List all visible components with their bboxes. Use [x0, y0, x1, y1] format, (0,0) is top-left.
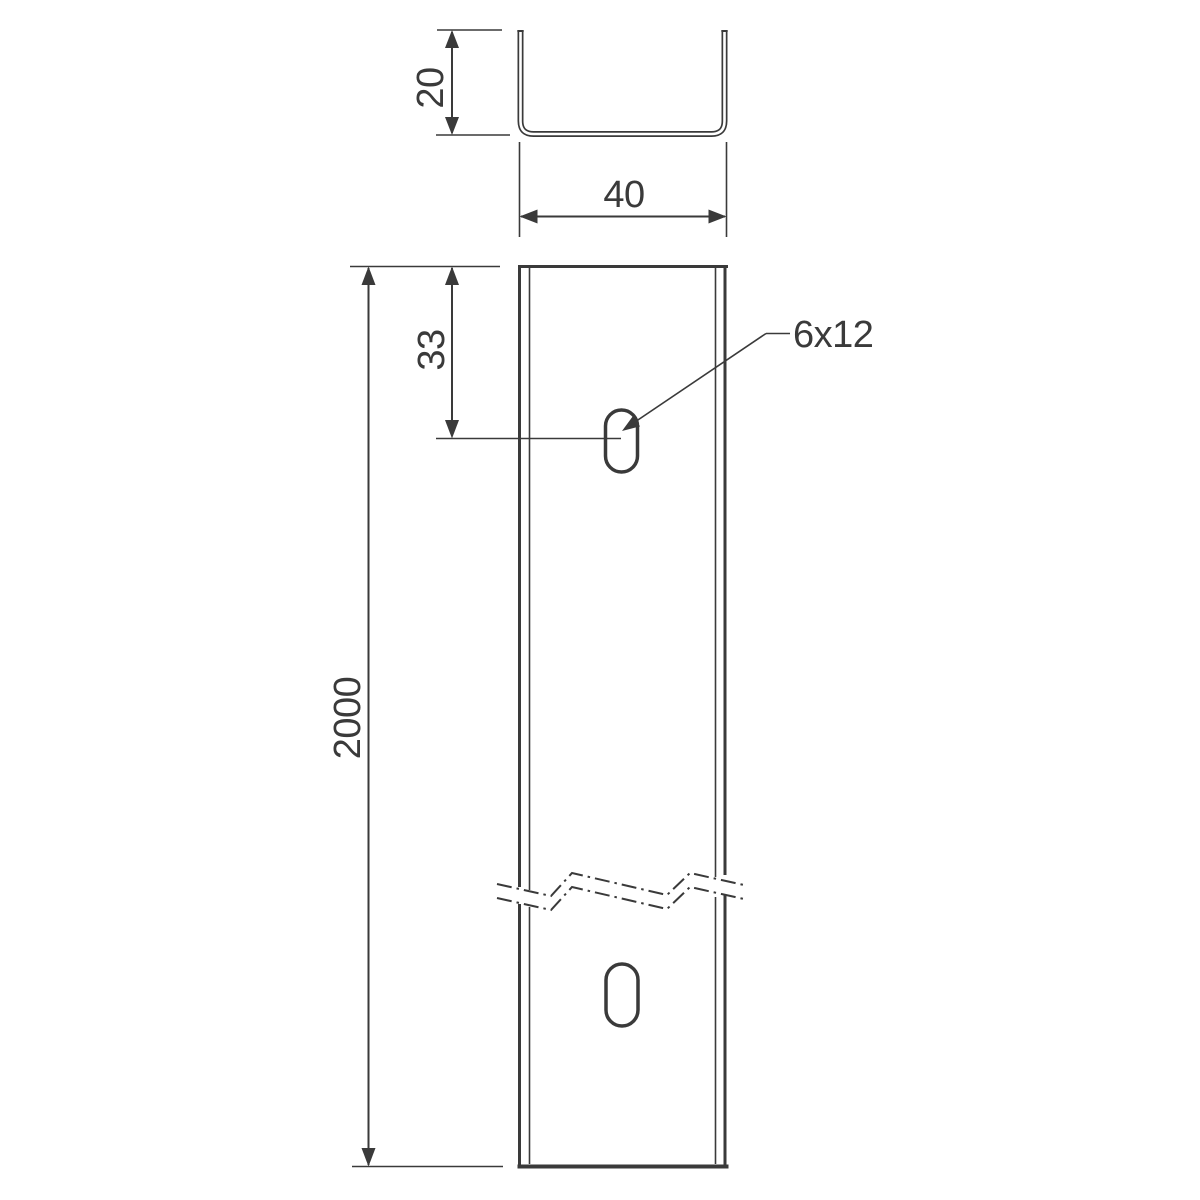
break-line-upper — [497, 873, 744, 896]
channel-profile-drawing: 20 40 2000 — [0, 0, 1200, 1200]
arrowhead-down — [445, 117, 459, 135]
dimension-text-profile-height: 20 — [410, 67, 452, 108]
leader-line-diagonal — [629, 334, 766, 427]
dimension-text-total-length: 2000 — [327, 677, 369, 760]
arrowhead-down — [362, 1148, 376, 1167]
arrowhead-left — [520, 210, 538, 224]
dimension-profile-height: 20 — [410, 30, 510, 135]
callout-text-slot-size: 6x12 — [793, 314, 873, 356]
dimension-text-profile-width: 40 — [603, 174, 644, 216]
dimension-profile-width: 40 — [520, 142, 727, 237]
channel-outline — [521, 30, 725, 134]
slot-size-callout: 6x12 — [622, 314, 873, 431]
dimension-slot-offset: 33 — [411, 267, 621, 439]
arrowhead-up — [445, 267, 459, 286]
break-line-lower — [497, 887, 744, 910]
dimension-text-slot-offset: 33 — [411, 329, 453, 370]
slot-hole-bottom — [606, 964, 638, 1026]
arrowhead-right — [709, 210, 727, 224]
arrowhead-up — [445, 30, 459, 48]
cross-section-view — [517, 30, 727, 134]
technical-drawing-canvas: 20 40 2000 — [0, 0, 1200, 1200]
arrowhead-up — [362, 267, 376, 286]
channel-sheet-gap — [521, 30, 725, 134]
front-view — [497, 265, 744, 1167]
dimension-total-length: 2000 — [327, 267, 503, 1167]
arrowhead-down — [445, 420, 459, 439]
